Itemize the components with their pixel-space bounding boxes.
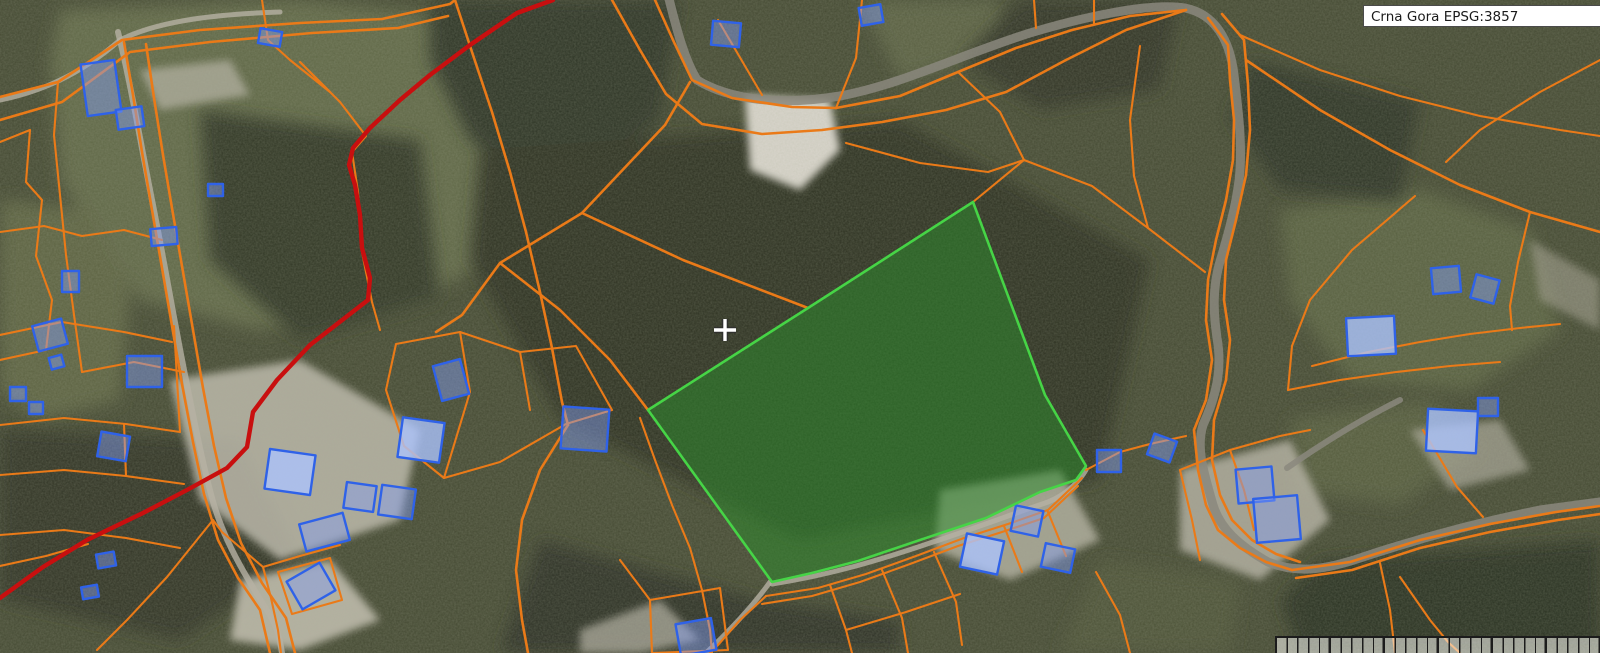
scale-bar: [1275, 636, 1600, 653]
map-canvas[interactable]: [0, 0, 1600, 653]
projection-label: Crna Gora EPSG:3857: [1363, 5, 1600, 27]
map-viewport[interactable]: Crna Gora EPSG:3857: [0, 0, 1600, 653]
